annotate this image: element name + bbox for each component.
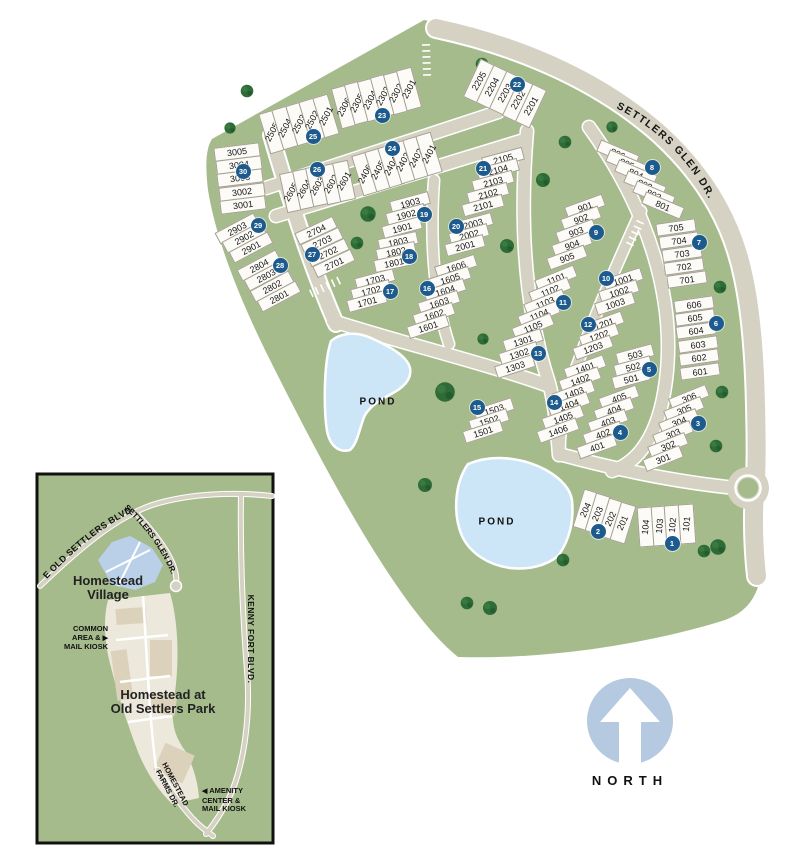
- tree-icon: [351, 237, 364, 250]
- tree-icon: [557, 554, 570, 567]
- tree-icon: [559, 136, 572, 149]
- pond-south: [456, 458, 572, 568]
- tree-icon: [360, 206, 375, 221]
- tree-icon: [461, 597, 474, 610]
- site-map-graphic: SETTLERS GLEN DR.: [0, 0, 810, 847]
- tree-icon: [710, 539, 725, 554]
- tree-icon: [477, 333, 488, 344]
- inset-culdesac: [171, 581, 182, 592]
- tree-icon: [224, 122, 235, 133]
- tree-icon: [418, 478, 432, 492]
- tree-icon: [716, 386, 729, 399]
- tree-icon: [241, 85, 254, 98]
- inset-map: E OLD SETTLERS BLVD. SETTLERS GLEN DR.: [37, 474, 273, 843]
- roundabout: [727, 467, 769, 509]
- tree-icon: [666, 262, 677, 273]
- tree-icon: [476, 58, 489, 71]
- tree-icon: [483, 601, 497, 615]
- tree-icon: [435, 382, 455, 402]
- tree-icon: [606, 121, 617, 132]
- tree-icon: [500, 239, 514, 253]
- north-compass: [587, 678, 673, 764]
- tree-icon: [710, 440, 723, 453]
- tree-icon: [536, 173, 550, 187]
- tree-icon: [714, 281, 727, 294]
- tree-icon: [698, 545, 711, 558]
- site-map-page: SETTLERS GLEN DR.: [0, 0, 810, 847]
